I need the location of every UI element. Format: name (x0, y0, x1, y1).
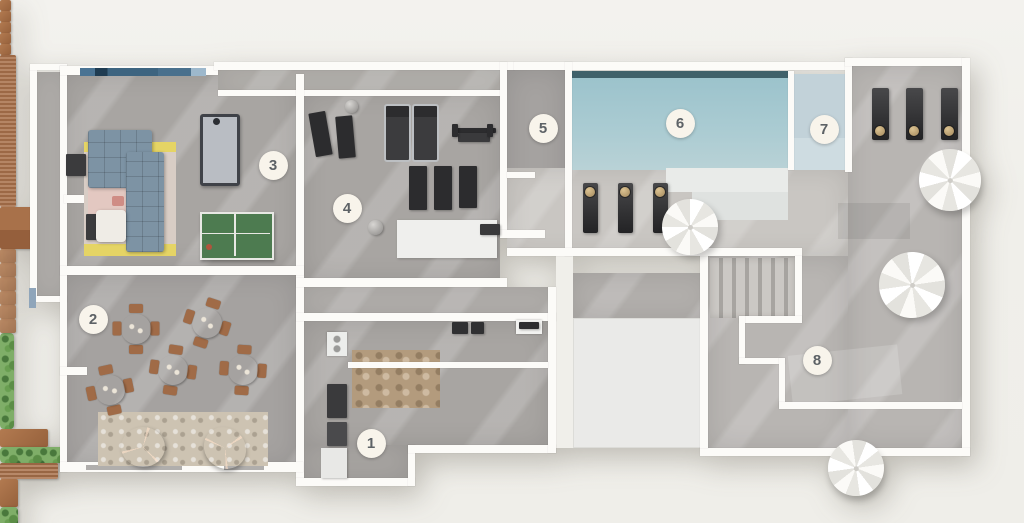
table-stool (0, 319, 16, 333)
weight-rack-post (452, 124, 458, 137)
sun-lounger (906, 88, 923, 140)
bar-bottom-wall-left (296, 478, 415, 486)
outer-wall-right (962, 58, 970, 456)
kitchen-counter (0, 55, 16, 207)
gym-mat (434, 166, 452, 210)
wooden-bench (0, 463, 58, 479)
hallway-floor (303, 287, 556, 315)
grill-appliance (471, 322, 484, 334)
gym-mat (459, 166, 477, 208)
ping-pong-net-line (234, 212, 236, 256)
area-marker-3: 3 (259, 151, 288, 180)
balcony-door-accent (29, 288, 36, 308)
treadmill (384, 104, 411, 162)
table-stool (0, 249, 16, 263)
table-stool (0, 291, 16, 305)
area-marker-8: 8 (803, 346, 832, 375)
media-shelf (80, 68, 206, 76)
dining-table-set (113, 306, 159, 352)
wooden-stool (0, 479, 18, 507)
console-table (0, 429, 48, 447)
terrace-inner-wall (779, 358, 785, 408)
floor-plan-canvas: 12345678 (0, 0, 1024, 523)
pool-edge (572, 71, 788, 78)
grill-appliance (452, 322, 468, 334)
kitchen-cabinet (321, 448, 347, 478)
lounge-rug-red-accent (112, 196, 124, 206)
deck-bottom-wall (507, 248, 802, 256)
ping-pong-center-line (200, 233, 270, 234)
exercise-bench (335, 115, 356, 158)
counter-appliance-top (519, 322, 539, 329)
corridor-top-wall (214, 62, 514, 70)
corridor-floor (218, 70, 505, 92)
pool-right-wall (788, 71, 794, 170)
light-well (556, 256, 573, 448)
weight-bench-pad (458, 133, 490, 142)
sun-lounger (941, 88, 958, 140)
weight-rack-post (487, 124, 493, 137)
terrace-inner-wall (739, 316, 802, 323)
bar-stool (0, 33, 11, 44)
pool-table (200, 114, 240, 186)
stairs (710, 258, 795, 318)
gym-counter-appliance (480, 224, 500, 235)
deck-top-wall (845, 58, 965, 66)
sectional-sofa-vertical (126, 152, 164, 252)
building-footprint: 12345678 (0, 0, 1024, 523)
ping-pong-table (200, 212, 274, 260)
walkway-floor (573, 273, 708, 319)
outer-wall (30, 68, 37, 302)
pool-table-rack (213, 118, 220, 125)
exercise-ball (345, 100, 358, 113)
games-dining-wall (60, 266, 304, 275)
area-marker-6: 6 (666, 109, 695, 138)
terrace-inner-wall (739, 316, 745, 364)
planter-greenery (0, 333, 14, 429)
mid-wall-vertical (296, 74, 304, 478)
table-stool (0, 263, 16, 277)
side-table-dark (66, 154, 86, 176)
area-marker-5: 5 (529, 114, 558, 143)
bar-bottom-wall-right (408, 445, 556, 453)
table-stool (0, 305, 16, 319)
sauna-right-wall (565, 62, 572, 256)
dining-table-set (218, 345, 267, 394)
kitchen-sink (327, 332, 347, 356)
stairs-right-wall (795, 256, 802, 322)
table-stool (0, 277, 16, 291)
sauna-bottom-wall (500, 230, 545, 238)
gym-mat (409, 166, 427, 210)
deck-divider-wall (845, 58, 852, 172)
bar-stool (0, 22, 11, 33)
exercise-ball (368, 220, 383, 235)
bench-shadow (838, 203, 910, 239)
planter-greenery (0, 507, 18, 523)
bar-stool (0, 0, 11, 11)
area-marker-2: 2 (79, 305, 108, 334)
bar-stool (0, 11, 11, 22)
sun-lounger (583, 183, 598, 233)
dining-table-set (83, 363, 138, 418)
wall-stub (64, 195, 84, 203)
pool-steps (666, 168, 788, 192)
bar-right-wall (548, 287, 556, 453)
ping-pong-paddle (206, 244, 212, 250)
gym-bottom-wall (296, 278, 507, 287)
bar-room-floor-ext (303, 445, 408, 478)
bar-rug (352, 350, 440, 408)
central-roof-block (573, 318, 708, 448)
terrace-left-wall (700, 256, 708, 448)
treadmill (412, 104, 439, 162)
bar-stool (0, 44, 11, 55)
corridor-bottom-wall (218, 90, 500, 96)
serving-counter (348, 362, 548, 368)
coffee-table (96, 210, 126, 242)
sauna-inner-stub (507, 172, 535, 178)
sauna-left-wall (500, 62, 507, 238)
area-marker-4: 4 (333, 194, 362, 223)
round-armchair (121, 427, 165, 467)
area-marker-1: 1 (357, 429, 386, 458)
sun-lounger (872, 88, 889, 140)
dining-table-set (147, 344, 199, 396)
parasol-umbrella (662, 199, 718, 255)
sun-lounger (618, 183, 633, 233)
cooktop (327, 384, 347, 418)
area-marker-7: 7 (810, 115, 839, 144)
kitchen-appliance (327, 422, 347, 446)
